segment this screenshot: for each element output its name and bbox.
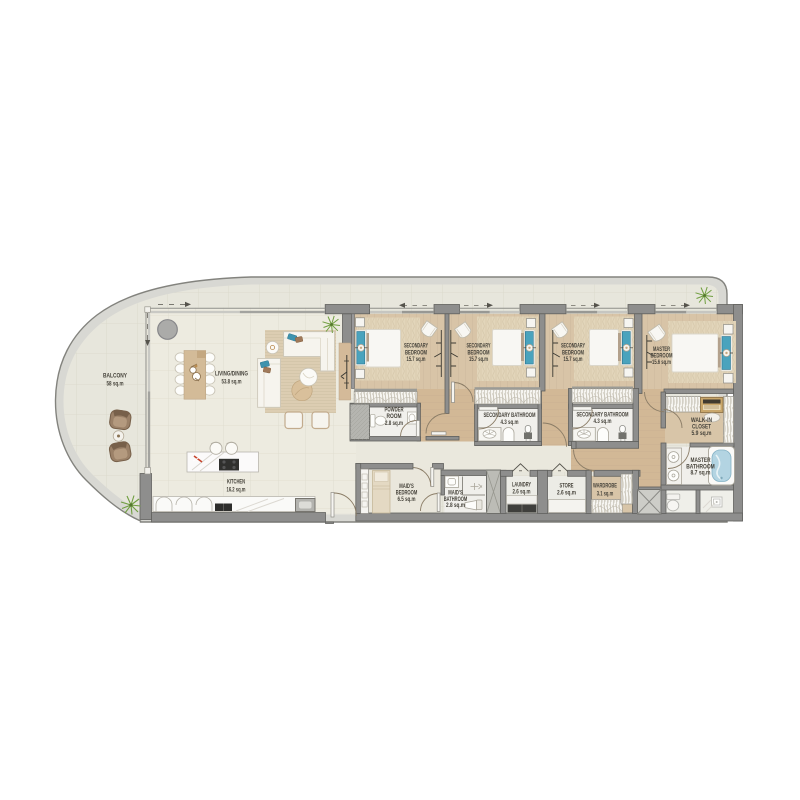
svg-text:SECONDARY BATHROOM: SECONDARY BATHROOM — [484, 412, 536, 419]
svg-text:ROOM: ROOM — [387, 413, 402, 420]
svg-text:58 sq.m: 58 sq.m — [107, 381, 124, 388]
svg-text:5.9 sq.m: 5.9 sq.m — [692, 430, 712, 437]
svg-text:BALCONY: BALCONY — [103, 373, 128, 380]
svg-text:2.6 sq.m: 2.6 sq.m — [557, 490, 576, 497]
svg-text:KITCHEN: KITCHEN — [227, 479, 245, 486]
svg-text:6.5 sq.m: 6.5 sq.m — [398, 496, 416, 503]
svg-text:STORE: STORE — [560, 483, 574, 490]
svg-text:8.7 sq.m: 8.7 sq.m — [691, 470, 711, 477]
svg-text:15.6 sq.m: 15.6 sq.m — [652, 359, 671, 366]
svg-text:3.1 sq.m: 3.1 sq.m — [597, 491, 614, 498]
svg-text:16.2 sq.m: 16.2 sq.m — [227, 487, 246, 494]
svg-text:2.8 sq.m: 2.8 sq.m — [446, 502, 465, 509]
svg-text:15.7 sq.m: 15.7 sq.m — [407, 356, 426, 363]
svg-text:4.3 sq.m: 4.3 sq.m — [501, 419, 519, 426]
svg-text:WARDROBE: WARDROBE — [593, 483, 617, 490]
svg-text:4.3 sq.m: 4.3 sq.m — [594, 418, 612, 425]
svg-text:15.7 sq.m: 15.7 sq.m — [564, 356, 583, 363]
svg-text:2.6 sq.m: 2.6 sq.m — [513, 489, 531, 496]
svg-text:LIVING/DINING: LIVING/DINING — [215, 371, 248, 378]
svg-text:53.8 sq.m: 53.8 sq.m — [222, 379, 242, 386]
svg-text:15.7 sq.m: 15.7 sq.m — [469, 356, 488, 363]
svg-text:LAUNDRY: LAUNDRY — [512, 482, 532, 489]
svg-text:2.8 sq.m: 2.8 sq.m — [385, 420, 403, 427]
